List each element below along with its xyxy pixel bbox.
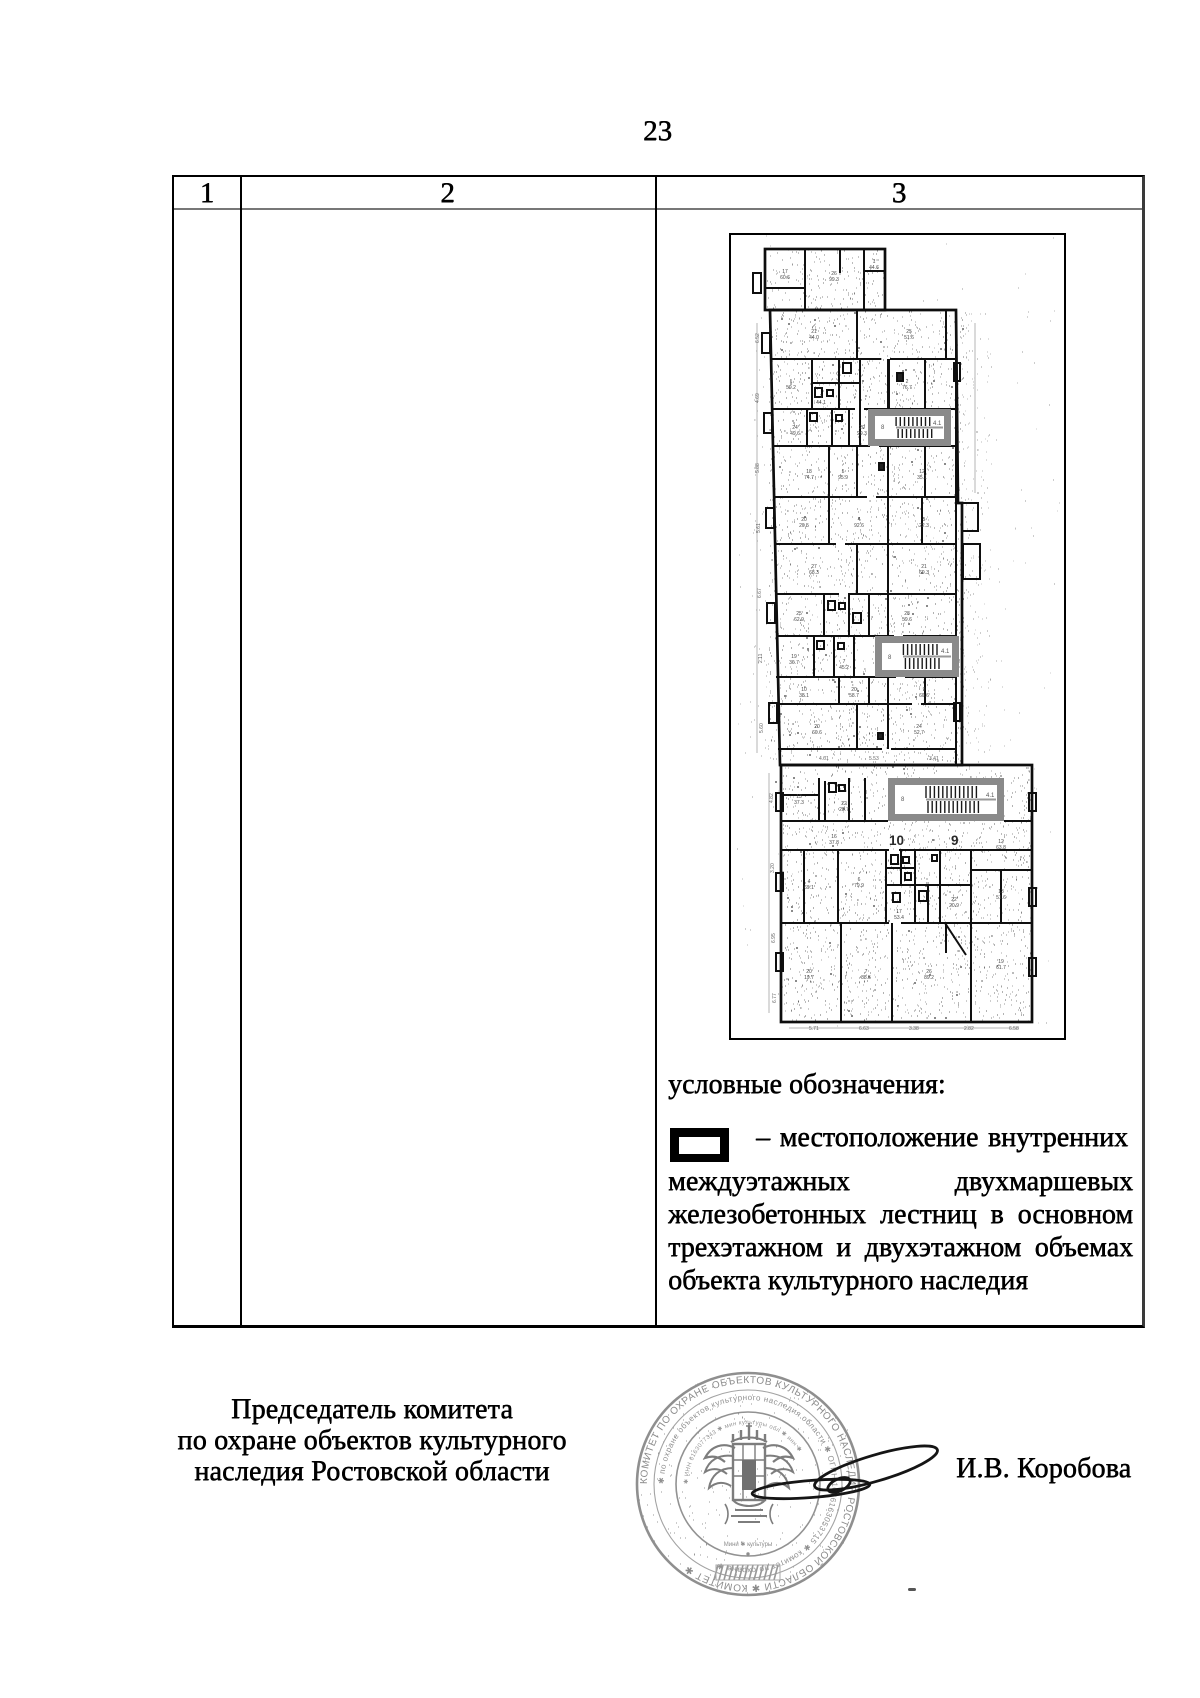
svg-text:60.6: 60.6: [780, 275, 790, 281]
svg-text:68.3: 68.3: [809, 570, 819, 576]
svg-text:4.61: 4.61: [819, 756, 829, 762]
svg-text:61.7: 61.7: [996, 965, 1006, 971]
svg-text:2.11: 2.11: [758, 653, 764, 663]
svg-text:6.52: 6.52: [755, 333, 761, 343]
svg-text:58.7: 58.7: [849, 693, 859, 699]
svg-text:6.77: 6.77: [772, 993, 778, 1003]
svg-text:44.0: 44.0: [809, 335, 819, 341]
svg-text:74.7: 74.7: [804, 475, 814, 481]
svg-text:6.67: 6.67: [757, 588, 763, 598]
svg-text:69.3: 69.3: [919, 570, 929, 576]
svg-text:5.60: 5.60: [759, 723, 765, 733]
svg-text:49.6: 49.6: [790, 431, 800, 437]
svg-text:51.6: 51.6: [996, 895, 1006, 901]
svg-text:4.69: 4.69: [755, 393, 761, 403]
svg-text:6.63: 6.63: [859, 1026, 869, 1032]
svg-text:4.1: 4.1: [986, 793, 995, 799]
svg-text:37.3: 37.3: [794, 800, 804, 806]
svg-text:45.2: 45.2: [839, 665, 849, 671]
svg-text:5.61: 5.61: [756, 523, 762, 533]
svg-text:59.6: 59.6: [902, 617, 912, 623]
svg-text:20.9: 20.9: [949, 903, 959, 909]
svg-text:35.1: 35.1: [917, 475, 927, 481]
svg-text:5.71: 5.71: [809, 1026, 819, 1032]
svg-text:6.95: 6.95: [771, 933, 777, 943]
svg-text:63.8: 63.8: [996, 845, 1006, 851]
svg-text:89.2: 89.2: [924, 975, 934, 981]
svg-text:36.7: 36.7: [789, 660, 799, 666]
svg-text:5.53: 5.53: [869, 756, 879, 762]
svg-text:2.82: 2.82: [964, 1026, 974, 1032]
svg-text:19.7: 19.7: [804, 975, 814, 981]
svg-text:3.38: 3.38: [909, 1026, 919, 1032]
svg-text:29.3: 29.3: [857, 431, 867, 437]
svg-text:88.5: 88.5: [861, 975, 871, 981]
svg-text:44.1: 44.1: [816, 400, 826, 406]
svg-text:37.8: 37.8: [829, 840, 839, 846]
svg-text:92.6: 92.6: [854, 523, 864, 529]
svg-text:4.82: 4.82: [769, 793, 775, 803]
svg-text:6.58: 6.58: [1009, 1026, 1019, 1032]
svg-text:5.88: 5.88: [755, 463, 761, 473]
svg-text:95.9: 95.9: [838, 475, 848, 481]
svg-text:38.1: 38.1: [799, 693, 809, 699]
svg-text:4.1: 4.1: [933, 421, 942, 427]
svg-text:52.7: 52.7: [914, 730, 924, 736]
svg-text:3.41: 3.41: [929, 756, 939, 762]
svg-text:9: 9: [951, 833, 959, 848]
svg-text:10: 10: [889, 833, 904, 848]
svg-text:62.9: 62.9: [794, 617, 804, 623]
svg-text:59.2: 59.2: [786, 385, 796, 391]
svg-text:44.6: 44.6: [869, 265, 879, 271]
svg-text:53.4: 53.4: [894, 915, 904, 921]
svg-text:20.5: 20.5: [799, 523, 809, 529]
svg-text:28.7: 28.7: [839, 807, 849, 813]
svg-text:99.3: 99.3: [829, 277, 839, 283]
svg-text:4.1: 4.1: [941, 649, 950, 655]
svg-text:3.20: 3.20: [770, 863, 776, 873]
svg-text:Мини ✱ культуры: Мини ✱ культуры: [724, 1541, 773, 1548]
svg-text:22.3: 22.3: [919, 523, 929, 529]
svg-text:51.6: 51.6: [904, 335, 914, 341]
svg-text:76.7: 76.7: [902, 385, 912, 391]
svg-text:69.1: 69.1: [804, 885, 814, 891]
svg-text:60.6: 60.6: [919, 693, 929, 699]
svg-text:60.6: 60.6: [812, 730, 822, 736]
svg-text:79.9: 79.9: [854, 883, 864, 889]
